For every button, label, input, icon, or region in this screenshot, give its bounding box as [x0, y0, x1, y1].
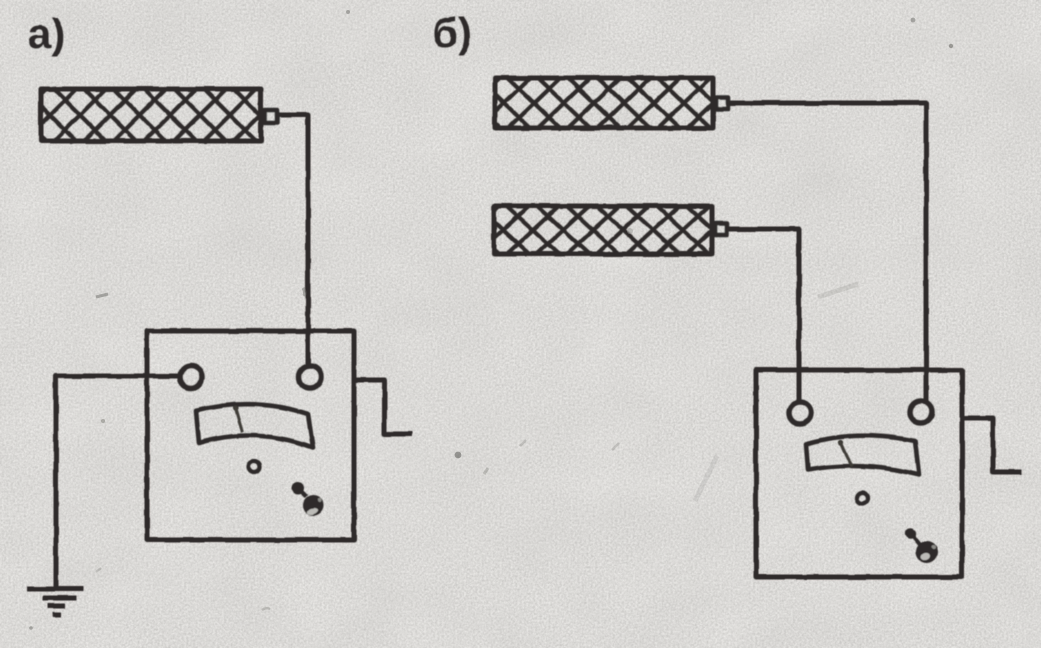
svg-text:б): б) [432, 9, 472, 56]
svg-text:а): а) [28, 10, 65, 57]
